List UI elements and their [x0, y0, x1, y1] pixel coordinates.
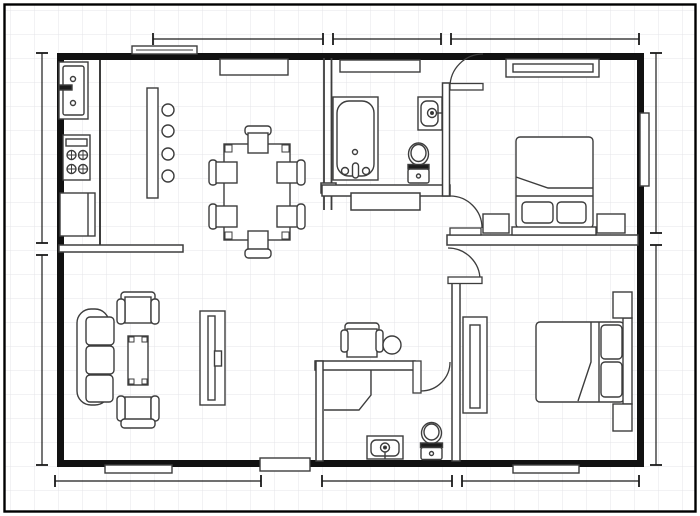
floor-plan-canvas: [0, 0, 700, 516]
round-stool: [383, 336, 401, 354]
tub-handle: [342, 168, 349, 175]
bathroom1-window: [340, 60, 420, 72]
dining-chair-west: [209, 204, 237, 229]
nightstand: [613, 404, 632, 431]
tub-drain: [353, 150, 358, 155]
tv-mount: [215, 351, 222, 366]
armchair-north: [117, 292, 159, 324]
linen-closet: [351, 193, 420, 210]
dining-chair-east: [277, 204, 305, 229]
bathroom2-west-wall: [316, 361, 323, 461]
headboard: [623, 318, 632, 404]
nightstand: [597, 214, 625, 233]
island-counter: [147, 88, 158, 198]
bedroom-divider-wall: [447, 235, 638, 245]
door-leaf: [448, 277, 482, 284]
stove-panel: [66, 139, 87, 146]
floor-plan-page: [0, 0, 700, 516]
grid-area: [6, 6, 695, 511]
dining-window-shelf: [220, 59, 288, 75]
toilet-button: [430, 452, 434, 456]
tub-handle: [363, 168, 370, 175]
wardrobe: [463, 317, 487, 413]
sofa-cushion: [86, 346, 114, 374]
coffee-table: [128, 336, 148, 385]
desk-chair: [341, 323, 383, 357]
bathroom1-east-wall: [443, 83, 450, 196]
table-leg: [282, 232, 289, 239]
nightstand: [613, 292, 632, 318]
bar-stool: [162, 148, 174, 160]
table-leg: [225, 232, 232, 239]
pillow: [557, 202, 586, 223]
bathtub: [333, 97, 378, 180]
bathroom2-north-wall: [315, 361, 415, 370]
door-leaf: [413, 361, 421, 393]
bar-stool: [162, 170, 174, 182]
wall-sink: [418, 97, 442, 130]
sink-faucet: [59, 85, 72, 90]
pillow: [601, 325, 622, 359]
dining-chair-west: [209, 160, 237, 185]
dining-chair-north: [245, 126, 271, 153]
pillow: [522, 202, 553, 223]
east-window: [640, 113, 649, 186]
dining-chair-east: [277, 160, 305, 185]
armchair-south: [117, 396, 159, 428]
entry-opening: [260, 458, 310, 471]
sofa-cushion: [86, 317, 114, 345]
bedroom2-window: [513, 465, 579, 473]
kitchen-half-wall: [59, 245, 183, 252]
pillow: [601, 362, 622, 397]
dining-group: [209, 126, 305, 258]
sofa-cushion: [86, 375, 113, 402]
tv-console: [200, 311, 225, 405]
door-leaf: [450, 84, 483, 91]
dining-chair-south: [245, 231, 271, 258]
sink-knob: [71, 77, 76, 82]
bar-stool: [162, 125, 174, 137]
nightstand: [483, 214, 509, 233]
bar-stool: [162, 104, 174, 116]
table-leg: [225, 145, 232, 152]
stove: [63, 135, 90, 180]
headboard: [512, 227, 596, 235]
tub-spout: [353, 163, 359, 178]
sink-knob: [71, 101, 76, 106]
toilet-button: [417, 174, 421, 178]
refrigerator: [60, 193, 95, 236]
vanity-sink: [367, 436, 403, 459]
door-leaf: [450, 228, 481, 235]
living-room-window: [105, 465, 172, 473]
hall-wall: [452, 283, 460, 461]
table-leg: [282, 145, 289, 152]
bedroom1-window-pane: [513, 64, 593, 72]
